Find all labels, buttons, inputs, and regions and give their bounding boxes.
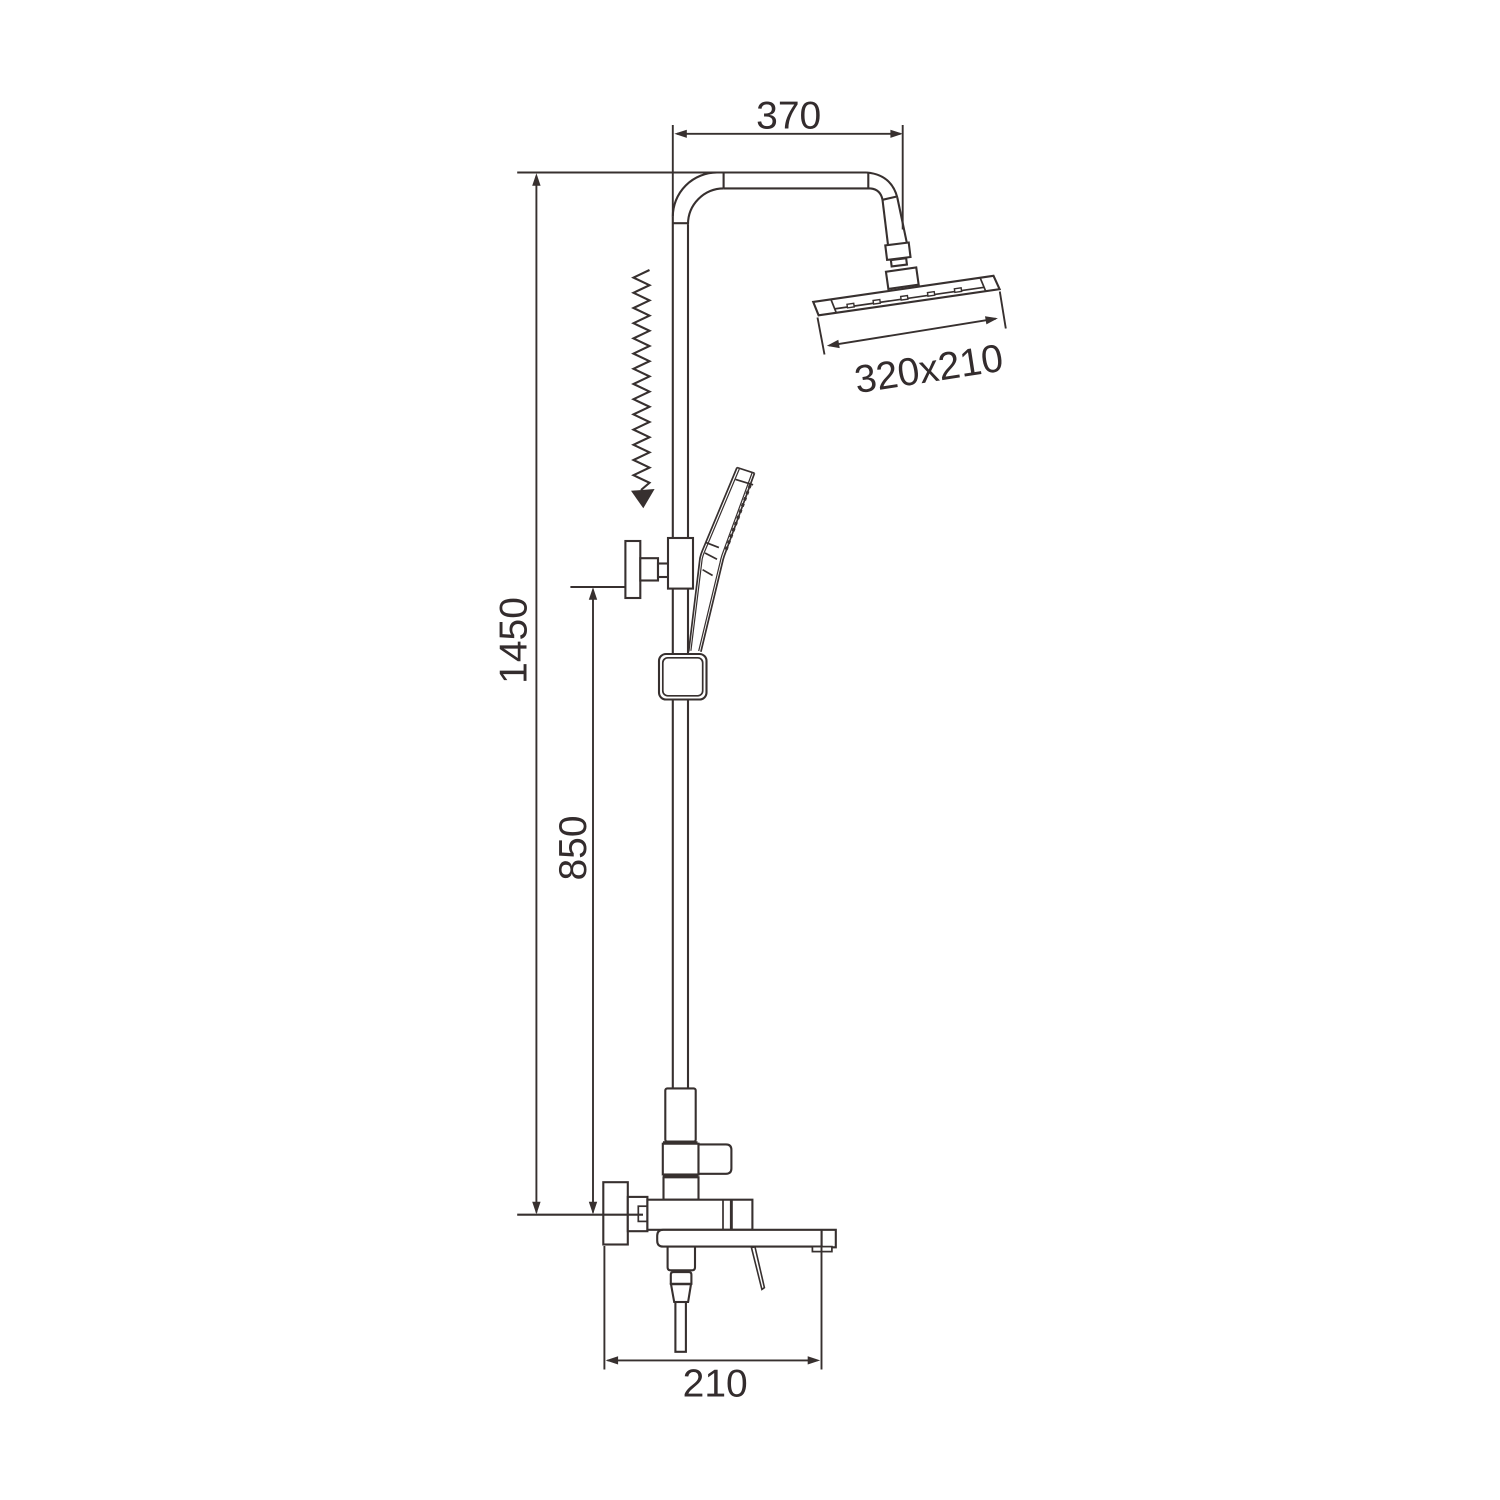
svg-text:850: 850: [552, 815, 595, 880]
svg-text:320x210: 320x210: [852, 337, 1006, 402]
svg-text:370: 370: [756, 95, 821, 138]
svg-text:1450: 1450: [493, 597, 536, 684]
svg-text:210: 210: [683, 1363, 748, 1406]
